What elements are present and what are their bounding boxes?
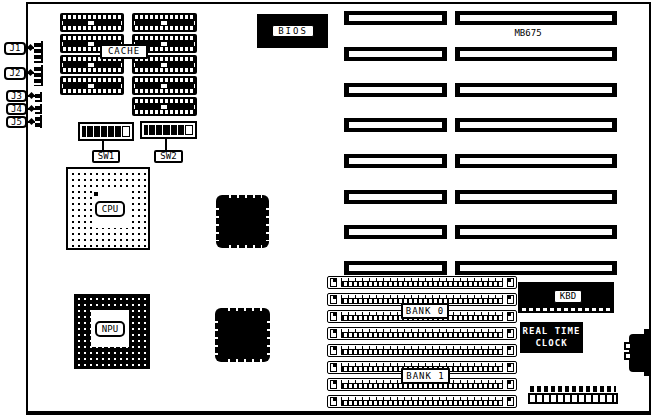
motherboard-diagram: CACHE J1J2J3J4J5 BIOS MB675 SW1 SW2 CPU … — [0, 0, 652, 416]
power-connector-cells — [528, 393, 618, 404]
board-edge-left — [26, 2, 28, 415]
qfp-chip-2 — [215, 308, 270, 362]
din-pin-upper — [624, 342, 632, 350]
isa-slot-long — [455, 118, 617, 132]
sw1-label: SW1 — [92, 150, 120, 163]
connector-link-arrow — [27, 44, 34, 51]
simm-socket — [327, 276, 517, 289]
cpu-label: CPU — [95, 201, 125, 217]
cache-dip-chip — [60, 76, 124, 95]
simm-socket — [327, 395, 517, 408]
rtc-label-line2: CLOCK — [535, 338, 567, 349]
connector-link-arrow — [27, 69, 34, 76]
cpu-socket-center: CPU — [92, 190, 129, 228]
qfp-chip-1 — [216, 195, 269, 248]
isa-slot-long — [455, 225, 617, 239]
isa-slot-short — [344, 190, 447, 204]
isa-slot-short — [344, 261, 447, 275]
connector-label: J2 — [4, 67, 26, 80]
pin-header — [34, 41, 43, 63]
pin-header — [35, 92, 42, 102]
isa-slot-long — [455, 190, 617, 204]
isa-slot-long — [455, 261, 617, 275]
isa-slot-long — [455, 83, 617, 97]
simm-socket — [327, 327, 517, 340]
connector-link-arrow — [28, 92, 35, 99]
npu-label: NPU — [95, 321, 125, 337]
isa-slot-long — [455, 47, 617, 61]
npu-socket-center: NPU — [91, 310, 129, 347]
isa-slot-long — [455, 154, 617, 168]
dip-switch-sw1 — [78, 122, 134, 141]
cache-label: CACHE — [100, 44, 148, 59]
isa-slot-short — [344, 154, 447, 168]
pin-header — [34, 65, 43, 86]
isa-slot-short — [344, 118, 447, 132]
pin-header — [35, 104, 42, 114]
kbd-pin-row — [522, 308, 610, 311]
sw2-pointer-line — [165, 137, 167, 151]
din-connector-flange — [644, 329, 651, 376]
kbd-label: KBD — [554, 290, 582, 303]
pin-header — [35, 115, 42, 128]
bank0-label: BANK 0 — [401, 303, 449, 319]
power-connector — [528, 385, 618, 404]
npu-socket: NPU — [74, 294, 150, 369]
connector-link-arrow — [28, 118, 35, 125]
isa-slot-short — [344, 11, 447, 25]
isa-slot-short — [344, 47, 447, 61]
model-label: MB675 — [496, 29, 560, 38]
bank1-label: BANK 1 — [401, 368, 450, 384]
dip-switch-sw2 — [140, 121, 197, 139]
cache-dip-chip — [132, 13, 197, 32]
bios-chip: BIOS — [257, 14, 328, 48]
pin1-marker — [94, 192, 98, 196]
connector-label: J1 — [4, 42, 26, 55]
bios-label: BIOS — [272, 25, 314, 37]
kbd-chip: KBD — [518, 282, 614, 313]
sw2-label: SW2 — [154, 150, 183, 163]
board-edge-bottom — [26, 411, 651, 415]
isa-slot-long — [455, 11, 617, 25]
connector-label: J4 — [6, 103, 27, 115]
isa-slot-short — [344, 83, 447, 97]
rtc-label-line1: REAL TIME — [523, 326, 581, 337]
cache-dip-chip — [132, 97, 197, 116]
cache-dip-chip — [60, 13, 124, 32]
din-pin-lower — [624, 352, 632, 360]
cpu-socket: CPU — [66, 167, 150, 250]
connector-label: J5 — [6, 116, 27, 128]
simm-socket — [327, 344, 517, 357]
isa-slot-short — [344, 225, 447, 239]
board-edge-top — [26, 2, 651, 4]
connector-label: J3 — [6, 90, 27, 102]
rtc-chip: REAL TIME CLOCK — [520, 322, 583, 353]
cache-dip-chip — [132, 76, 197, 95]
connector-link-arrow — [28, 105, 35, 112]
